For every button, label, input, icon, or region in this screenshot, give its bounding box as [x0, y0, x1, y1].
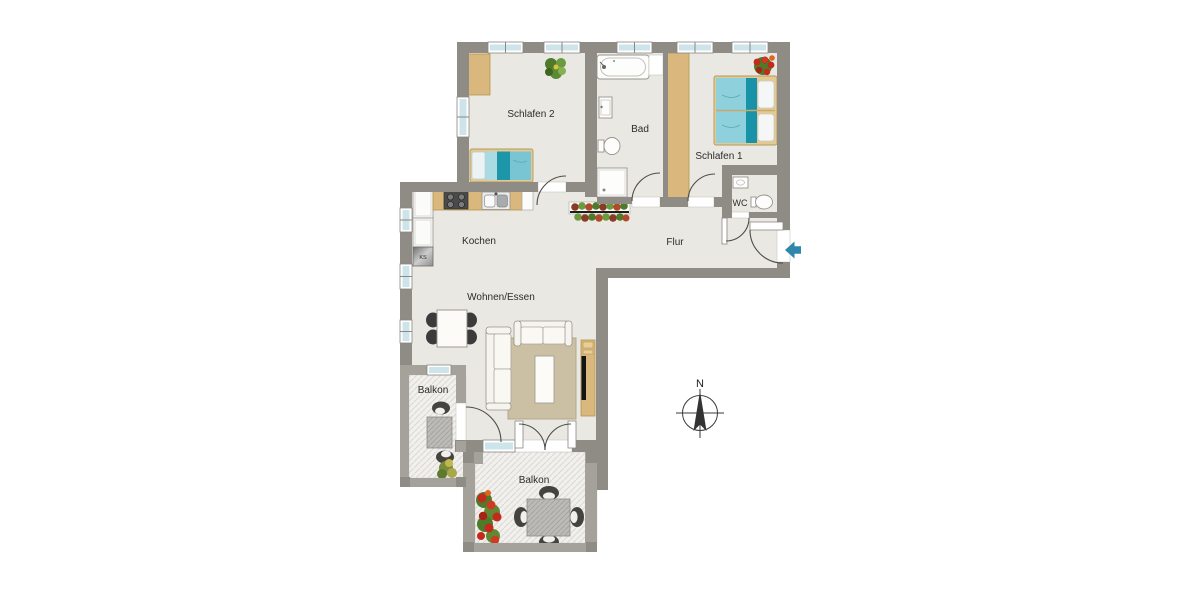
window: [483, 440, 515, 452]
label-schlafen1: Schlafen 1: [695, 151, 743, 162]
balcony-table-south: [527, 499, 570, 536]
plant-shelf: [569, 202, 630, 222]
wall: [722, 165, 777, 175]
wall: [714, 197, 722, 207]
label-wohnen-essen: Wohnen/Essen: [467, 292, 535, 303]
wall: [400, 182, 538, 192]
fridge-label: KS: [419, 255, 427, 261]
kitchen-cabinet: [413, 218, 433, 247]
balcony-corner: [400, 477, 410, 487]
balcony-wall: [585, 452, 597, 543]
stove: [444, 193, 468, 210]
window: [400, 208, 412, 232]
window: [677, 42, 713, 53]
label-bad: Bad: [631, 124, 649, 135]
wall: [667, 197, 688, 207]
fridge: KS: [413, 247, 433, 266]
door-opening-balcony-west: [456, 403, 466, 441]
balcony-corner: [463, 542, 474, 552]
window: [400, 320, 412, 343]
label-balkon-sued: Balkon: [519, 475, 550, 486]
wall: [400, 192, 412, 208]
balcony-corner: [463, 452, 474, 463]
balcony-wall: [456, 441, 466, 452]
dining-table: [437, 310, 467, 347]
wall: [663, 53, 668, 197]
label-flur: Flur: [666, 237, 684, 248]
kitchen-sink: [482, 192, 510, 210]
balcony-wall: [456, 375, 466, 403]
balcony-wall: [451, 365, 466, 375]
bed-single: [470, 149, 533, 182]
wall: [572, 440, 608, 452]
wall: [400, 232, 412, 264]
counter-end: [522, 191, 533, 210]
wall: [596, 268, 790, 278]
sofa-top: [514, 321, 572, 346]
wall: [457, 53, 469, 97]
door-leaf-entry: [750, 222, 783, 230]
window: [732, 42, 768, 53]
label-balkon-west: Balkon: [418, 385, 449, 396]
shower: [597, 168, 627, 197]
window: [488, 42, 523, 53]
wall: [457, 137, 469, 182]
window: [427, 365, 451, 375]
door-leaf-french-right: [568, 421, 576, 448]
balcony-wall: [463, 543, 597, 552]
wc-toilet: [751, 195, 773, 209]
window: [617, 42, 652, 53]
coffee-table: [535, 356, 554, 403]
toilet-bad: [598, 138, 620, 155]
balcony-wall: [400, 375, 409, 487]
bath-shelf: [649, 55, 663, 75]
balcony-table-west: [427, 417, 452, 448]
tv-board: [581, 340, 595, 416]
window: [457, 97, 469, 137]
kitchen-cabinet: [413, 188, 433, 218]
window: [400, 264, 412, 289]
door-opening-bad: [632, 197, 660, 207]
window: [544, 42, 580, 53]
balcony-wall: [463, 452, 475, 543]
label-schlafen2: Schlafen 2: [507, 109, 555, 120]
door-leaf-wc: [722, 218, 727, 244]
wall: [585, 53, 597, 197]
balcony-corner: [586, 452, 597, 463]
bed-double: [714, 76, 777, 145]
wc-sink: [733, 177, 748, 188]
wall: [596, 268, 608, 490]
wall: [597, 197, 632, 204]
door-opening-entry: [777, 230, 790, 262]
label-kochen: Kochen: [462, 236, 496, 247]
tv: [582, 356, 587, 400]
balcony-corner: [456, 477, 466, 487]
compass-north-label: N: [696, 378, 704, 390]
balcony-corner: [586, 542, 597, 552]
door-opening-schlafen1: [688, 197, 714, 207]
balcony-wall: [400, 365, 427, 375]
wardrobe-schlafen1: [667, 53, 689, 200]
wall: [400, 343, 412, 365]
wall: [749, 212, 777, 218]
door-opening-schlafen2: [538, 182, 566, 192]
wall: [722, 175, 732, 218]
wall: [660, 197, 667, 207]
compass: N: [676, 378, 724, 438]
label-wc: WC: [733, 198, 748, 208]
sink-bad: [599, 97, 612, 118]
door-leaf-french-left: [515, 421, 523, 448]
sofa-left: [486, 327, 511, 410]
wardrobe-schlafen2: [468, 54, 490, 95]
floor-plan-svg: KS: [0, 0, 1200, 600]
floor-plan-page: KS: [0, 0, 1200, 600]
bathtub: [597, 55, 649, 79]
wall: [400, 289, 412, 320]
wall: [777, 53, 790, 230]
